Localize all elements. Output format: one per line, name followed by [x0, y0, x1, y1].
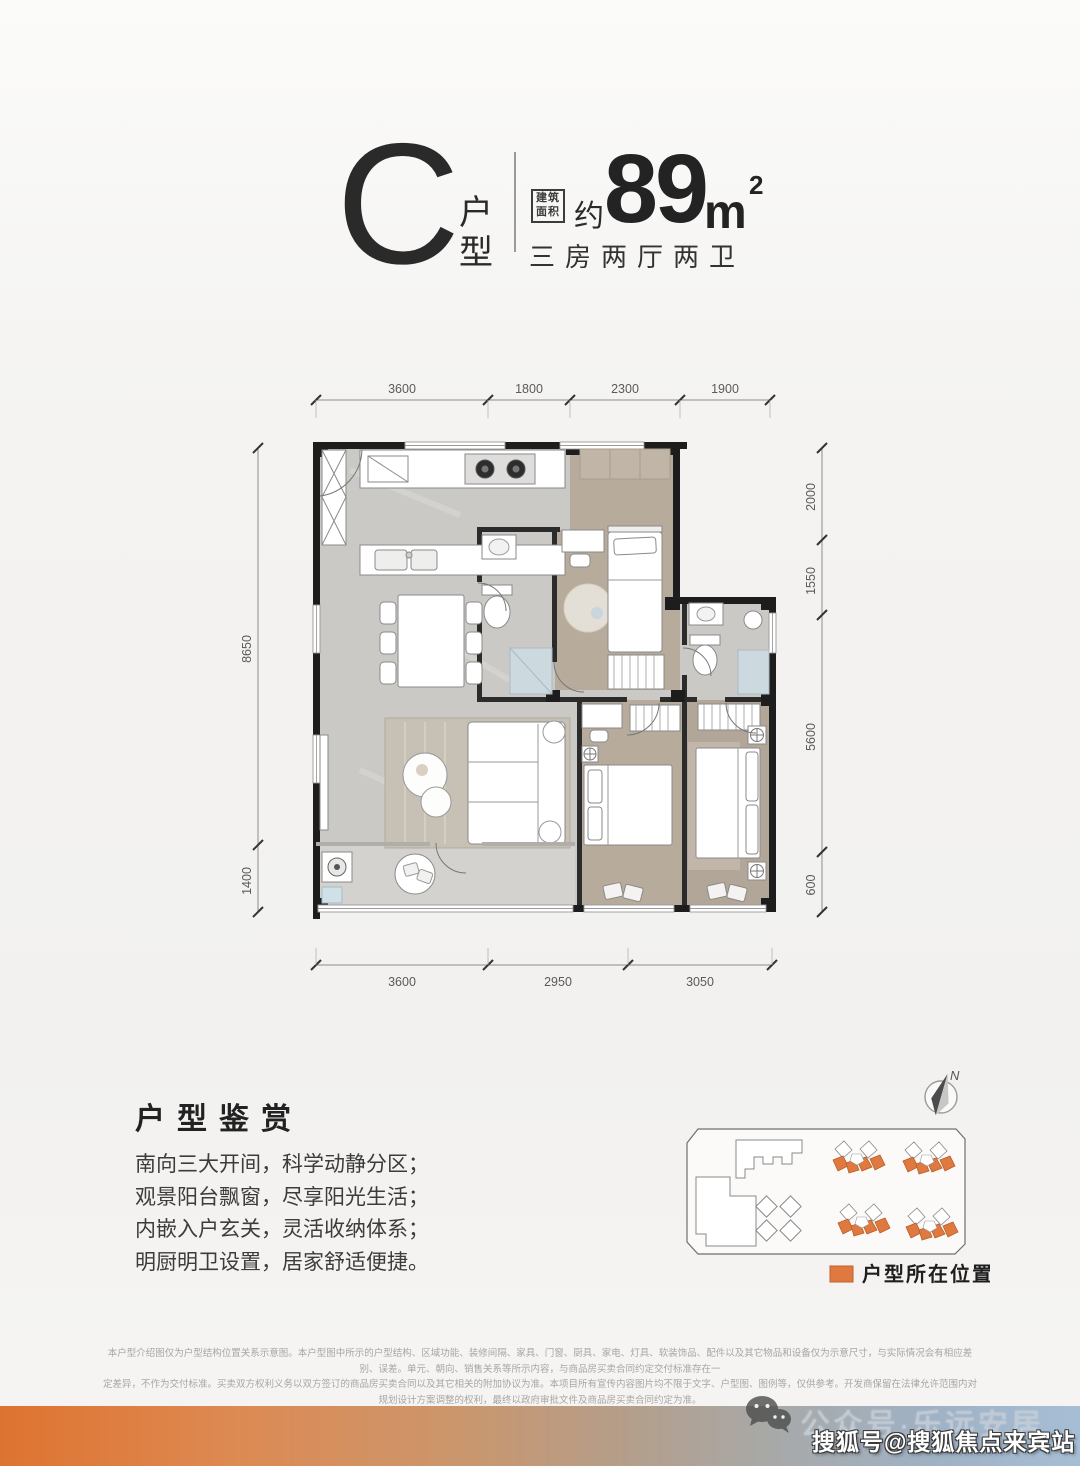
north-label: N — [950, 1068, 960, 1083]
dim-label: 3050 — [686, 975, 714, 989]
dim-label: 5600 — [804, 723, 818, 751]
stamp-text: 面积 — [536, 206, 560, 220]
unit-type-char: 型 — [456, 233, 496, 273]
appreciation-title: 户型鉴赏 — [135, 1094, 303, 1138]
legend: 户型所在位置 — [830, 1262, 990, 1286]
appreciation-text: 南向三大开间，科学动静分区； 观景阳台飘窗，尽享阳光生活； 内嵌入户玄关，灵活收… — [135, 1149, 475, 1279]
dim-label: 8650 — [240, 635, 254, 663]
legend-label: 户型所在位置 — [862, 1262, 990, 1286]
dining-table — [380, 595, 482, 687]
dim-label: 1900 — [711, 382, 739, 396]
dim-label: 3600 — [388, 382, 416, 396]
stamp-text: 建筑 — [536, 192, 560, 206]
appreciation-line: 内嵌入户玄关，灵活收纳体系； — [135, 1214, 475, 1247]
disclaimer-line: 本户型介绍图仅为户型结构位置关系示意图。本户型图中所示的户型结构、区域功能、装修… — [100, 1346, 980, 1377]
wechat-icon — [742, 1392, 794, 1438]
siteplan: N 户型所在位置 — [670, 1040, 990, 1290]
unit-letter: C — [336, 118, 456, 290]
rooms-description: 三房两厅两卫 — [529, 237, 745, 274]
dim-label: 600 — [804, 875, 818, 896]
area-superscript: 2 — [749, 170, 763, 201]
appreciation-line: 明厨明卫设置，居家舒适便捷。 — [135, 1247, 475, 1280]
area-unit: m — [704, 189, 747, 237]
legend-swatch — [830, 1266, 853, 1282]
dim-label: 3600 — [388, 975, 416, 989]
appreciation-line: 南向三大开间，科学动静分区； — [135, 1149, 475, 1182]
dim-label: 1400 — [240, 867, 254, 895]
sohu-watermark: 搜狐号@搜狐焦点来宾站 — [812, 1423, 1075, 1457]
dim-label: 1800 — [515, 382, 543, 396]
area-approx: 约 — [574, 191, 604, 235]
header-divider — [514, 152, 516, 252]
unit-type-char: 户 — [456, 193, 496, 233]
dim-label: 2300 — [611, 382, 639, 396]
floorplan-drawing: 3600 1800 2300 1900 3600 2950 3050 8650 … — [210, 350, 900, 1040]
unit-type-label: 户 型 — [456, 193, 496, 273]
area-value: 89 — [604, 140, 706, 237]
dim-label: 2950 — [544, 975, 572, 989]
floorplan-poster: { "header": { "unit_letter": "C", "unit_… — [0, 0, 1080, 1466]
appreciation-line: 观景阳台飘窗，尽享阳光生活； — [135, 1182, 475, 1215]
dim-label: 1550 — [804, 567, 818, 595]
building-area-stamp: 建筑 面积 — [531, 189, 565, 223]
compass-icon: N — [925, 1068, 960, 1118]
dim-label: 2000 — [804, 483, 818, 511]
